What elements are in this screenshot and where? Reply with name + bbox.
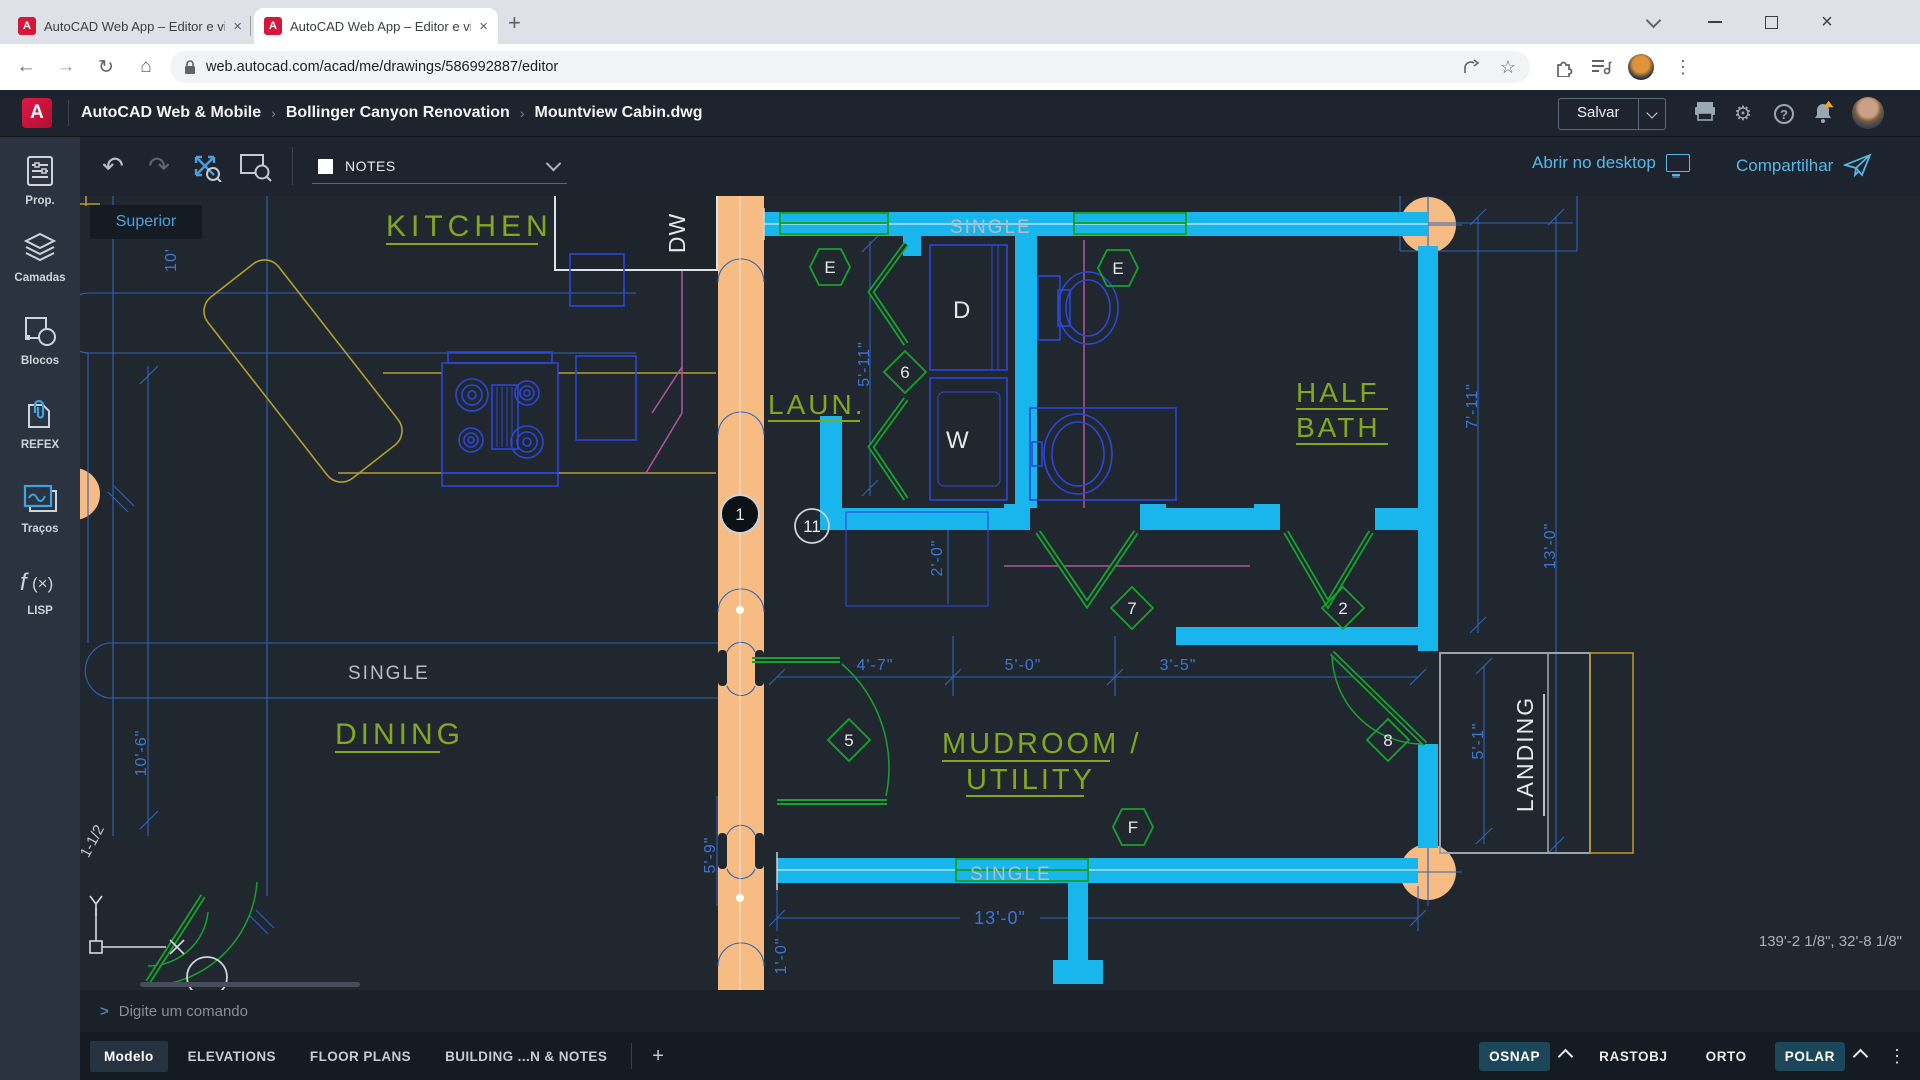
- viewport-tooltip: Superior: [90, 205, 202, 239]
- header-divider: [68, 100, 69, 126]
- dim-small: 1'-0": [773, 938, 790, 975]
- sidebar-label: Camadas: [0, 272, 80, 284]
- address-bar[interactable]: web.autocad.com/acad/me/drawings/5869928…: [170, 51, 1530, 83]
- browser-profile-avatar[interactable]: [1628, 54, 1654, 80]
- dw-label: DW: [664, 213, 690, 253]
- tab-search-icon[interactable]: [1630, 0, 1676, 44]
- zoom-extents-icon[interactable]: [190, 151, 224, 181]
- share-button[interactable]: Compartilhar: [1736, 153, 1873, 179]
- sidebar-item-blocks[interactable]: Blocos: [0, 315, 80, 367]
- tag-e: E: [1112, 259, 1123, 278]
- bookmark-star-icon[interactable]: ☆: [1500, 57, 1516, 78]
- reading-list-icon[interactable]: [1590, 58, 1612, 76]
- autocad-logo[interactable]: A: [22, 98, 52, 128]
- command-chevron-icon: >: [100, 1003, 109, 1020]
- room-laundry: LAUN.: [768, 389, 865, 420]
- dim-mud-a: 4'-7": [857, 657, 894, 674]
- tag-5: 5: [844, 731, 853, 750]
- orto-toggle[interactable]: ORTO: [1696, 1042, 1757, 1071]
- dim-right-upper: 7'-11": [1464, 383, 1481, 429]
- dim-top-left: 10': [163, 248, 180, 272]
- dim-landing: 5'-1": [1470, 723, 1487, 760]
- breadcrumb-file: Mountview Cabin.dwg: [535, 104, 703, 122]
- svg-text:(×): (×): [32, 574, 53, 593]
- svg-text:f: f: [20, 569, 29, 596]
- floor-plan-drawing: 1 11 E E F 6 7 2 5 8 KITCHEN LAUN. HA: [80, 196, 1920, 990]
- paper-plane-icon: [1843, 153, 1873, 179]
- browser-menu-icon[interactable]: ⋮: [1674, 57, 1692, 78]
- toilet: [1038, 276, 1060, 340]
- room-labels: KITCHEN LAUN. HALF BATH DINING MUDROOM /…: [335, 210, 1388, 796]
- tag-11: 11: [803, 517, 821, 536]
- room-mudroom-1: MUDROOM /: [942, 728, 1141, 760]
- tab-title: AutoCAD Web App – Editor e vis: [290, 19, 471, 34]
- sheet-tab-building-notes[interactable]: BUILDING ...N & NOTES: [431, 1041, 621, 1072]
- save-button[interactable]: Salvar: [1559, 99, 1638, 129]
- tag-6: 6: [900, 363, 909, 382]
- breadcrumb-separator: ›: [520, 105, 525, 121]
- dim-right-full: 13'-0": [1542, 523, 1559, 570]
- sidebar-item-xref[interactable]: REFEX: [0, 399, 80, 451]
- room-dining: DINING: [335, 718, 464, 751]
- home-icon[interactable]: ⌂: [126, 56, 166, 78]
- tab-close-icon[interactable]: ×: [479, 18, 488, 35]
- extensions-puzzle-icon[interactable]: [1554, 57, 1574, 77]
- new-tab-button[interactable]: +: [508, 10, 521, 36]
- window-label-top: SINGLE: [950, 217, 1032, 238]
- window-minimize-button[interactable]: [1692, 0, 1738, 44]
- share-icon[interactable]: [1462, 58, 1482, 76]
- layer-name: NOTES: [345, 158, 396, 174]
- tag-f: F: [1128, 818, 1138, 837]
- window-label-bottom: SINGLE: [970, 864, 1052, 885]
- save-split-button[interactable]: Salvar: [1558, 98, 1666, 130]
- landing-label: LANDING: [1512, 696, 1538, 812]
- open-in-desktop-button[interactable]: Abrir no desktop: [1532, 153, 1690, 173]
- tag-e: E: [824, 258, 835, 277]
- dim-laundry: 5'-11": [856, 341, 873, 387]
- tab-title: AutoCAD Web App – Editor e vis: [44, 19, 225, 34]
- horizontal-scrollbar[interactable]: [140, 982, 360, 987]
- annotation-text: SINGLE SINGLE SINGLE D W DW LANDING 1-1/…: [80, 213, 1538, 885]
- breadcrumb-separator: ›: [271, 105, 276, 121]
- autocad-favicon: A: [18, 17, 36, 35]
- add-sheet-button[interactable]: +: [642, 1045, 674, 1068]
- room-halfbath-1: HALF: [1296, 377, 1380, 408]
- dimension-lines: [80, 196, 1577, 966]
- sidebar-label: Traços: [0, 523, 80, 535]
- window-label-mid: SINGLE: [348, 663, 430, 684]
- fixtures: [442, 245, 1176, 606]
- tag-7: 7: [1127, 599, 1136, 618]
- tab-divider: [250, 16, 251, 36]
- sidebar-label: Blocos: [0, 355, 80, 367]
- chevron-down-icon: [546, 155, 562, 171]
- autocad-web-app-window: A AutoCAD Web App – Editor e vis × A Aut…: [0, 0, 1920, 1080]
- save-options-caret[interactable]: [1638, 99, 1665, 129]
- breadcrumb-project[interactable]: Bollinger Canyon Renovation: [286, 104, 510, 122]
- status-toggles: OSNAP RASTOBJ ORTO POLAR ⋮: [1479, 1032, 1906, 1080]
- redo-icon[interactable]: ↷: [142, 151, 176, 181]
- tag-8: 8: [1383, 731, 1392, 750]
- notifications-bell-icon[interactable]: [1812, 101, 1838, 129]
- window-restore-button[interactable]: [1748, 0, 1794, 44]
- sidebar-item-properties[interactable]: Prop.: [0, 155, 80, 207]
- xref-paperclip-icon: [23, 399, 57, 431]
- sidebar-label: REFEX: [0, 439, 80, 451]
- desktop-monitor-icon: [1666, 154, 1690, 172]
- browser-navbar: ← → ↻ ⌂ web.autocad.com/acad/me/drawings…: [0, 44, 1920, 90]
- polar-toggle[interactable]: POLAR: [1775, 1042, 1866, 1071]
- dim-left: 10'-6": [133, 730, 150, 777]
- forward-icon[interactable]: →: [46, 56, 86, 78]
- sidebar-item-lisp[interactable]: f(×) LISP: [0, 567, 80, 617]
- lisp-fx-icon: f(×): [18, 567, 62, 597]
- orto-label: ORTO: [1696, 1042, 1757, 1071]
- tab-close-icon[interactable]: ×: [233, 18, 242, 35]
- share-label: Compartilhar: [1736, 156, 1833, 176]
- print-icon[interactable]: [1694, 101, 1716, 127]
- sidebar-label: LISP: [0, 605, 80, 617]
- dim-mud-b: 5'-0": [1005, 657, 1042, 674]
- browser-tab-1[interactable]: A AutoCAD Web App – Editor e vis ×: [8, 8, 252, 44]
- browser-tab-bar: A AutoCAD Web App – Editor e vis × A Aut…: [0, 0, 1920, 44]
- blocks-icon: [23, 315, 57, 347]
- rastobj-toggle[interactable]: RASTOBJ: [1589, 1042, 1677, 1071]
- sheet-tab-model[interactable]: Modelo: [90, 1041, 168, 1072]
- dishwasher-box: [555, 196, 717, 270]
- lock-icon: [184, 60, 196, 75]
- chevron-up-icon[interactable]: [1853, 1048, 1869, 1064]
- sidebar-label: Prop.: [0, 195, 80, 207]
- breadcrumb-app[interactable]: AutoCAD Web & Mobile: [81, 104, 261, 122]
- layers-icon: [23, 232, 57, 264]
- undo-icon[interactable]: ↶: [96, 151, 130, 181]
- dryer-label: D: [953, 297, 970, 324]
- strip-divider: [631, 1043, 632, 1069]
- drawing-toolbar: ↶ ↷ NOTES Abrir no desktop Compartilhar: [80, 137, 1920, 196]
- properties-panel-icon: [25, 155, 55, 187]
- command-bar[interactable]: > Digite um comando: [80, 990, 1920, 1032]
- app-header: A AutoCAD Web & Mobile › Bollinger Canyo…: [0, 90, 1920, 137]
- settings-gear-icon[interactable]: ⚙: [1734, 101, 1752, 126]
- autocad-favicon: A: [264, 17, 282, 35]
- stud-walls: [764, 212, 1438, 984]
- cursor-coordinates: 139'-2 1/8", 32'-8 1/8": [1759, 933, 1902, 950]
- browser-tab-2-active[interactable]: A AutoCAD Web App – Editor e vis ×: [254, 8, 498, 44]
- command-input-placeholder[interactable]: Digite um comando: [119, 1003, 248, 1020]
- room-halfbath-2: BATH: [1296, 412, 1381, 443]
- rastobj-label: RASTOBJ: [1589, 1042, 1677, 1071]
- dim-bottom: 13'-0": [974, 908, 1026, 928]
- sheet-tab-elevations[interactable]: ELEVATIONS: [174, 1041, 290, 1072]
- layer-dropdown[interactable]: NOTES: [312, 149, 567, 184]
- tag-2: 2: [1338, 599, 1347, 618]
- stove: [442, 363, 558, 473]
- sheet-tab-strip: Modelo ELEVATIONS FLOOR PLANS BUILDING .…: [80, 1032, 1920, 1080]
- url-text: web.autocad.com/acad/me/drawings/5869928…: [206, 59, 558, 75]
- polar-label: POLAR: [1775, 1042, 1845, 1071]
- washer-label: W: [946, 427, 969, 454]
- room-kitchen: KITCHEN: [386, 210, 553, 243]
- osnap-toggle[interactable]: OSNAP: [1479, 1042, 1571, 1071]
- refresh-icon[interactable]: ↻: [86, 56, 126, 79]
- wall-note: 1-1/2: [80, 822, 108, 860]
- sidebar-item-traces[interactable]: Traços: [0, 483, 80, 535]
- zoom-window-icon[interactable]: [238, 151, 272, 181]
- help-icon[interactable]: ?: [1774, 104, 1794, 124]
- osnap-label: OSNAP: [1479, 1042, 1550, 1071]
- user-avatar[interactable]: [1852, 97, 1884, 129]
- room-mudroom-2: UTILITY: [966, 764, 1095, 796]
- toolbar-divider: [292, 147, 293, 185]
- window-close-button[interactable]: ×: [1804, 0, 1850, 44]
- wall-tag-1: 1: [735, 505, 744, 524]
- back-icon[interactable]: ←: [6, 56, 46, 78]
- open-desktop-label: Abrir no desktop: [1532, 153, 1656, 173]
- dim-mud-left: 5'-9": [702, 837, 719, 874]
- layer-color-swatch: [318, 159, 333, 174]
- left-panel-sidebar: Prop. Camadas Blocos REFEX Traços f(×) L…: [0, 137, 80, 1080]
- drawing-canvas[interactable]: 1 11 E E F 6 7 2 5 8 KITCHEN LAUN. HA: [80, 196, 1920, 990]
- traces-icon: [22, 483, 58, 515]
- sheet-tab-floorplans[interactable]: FLOOR PLANS: [296, 1041, 425, 1072]
- dim-closet: 2'-0": [929, 540, 946, 577]
- status-overflow-menu-icon[interactable]: ⋮: [1888, 1046, 1906, 1067]
- dim-mud-c: 3'-5": [1160, 657, 1197, 674]
- sidebar-item-layers[interactable]: Camadas: [0, 232, 80, 284]
- chevron-up-icon[interactable]: [1558, 1048, 1574, 1064]
